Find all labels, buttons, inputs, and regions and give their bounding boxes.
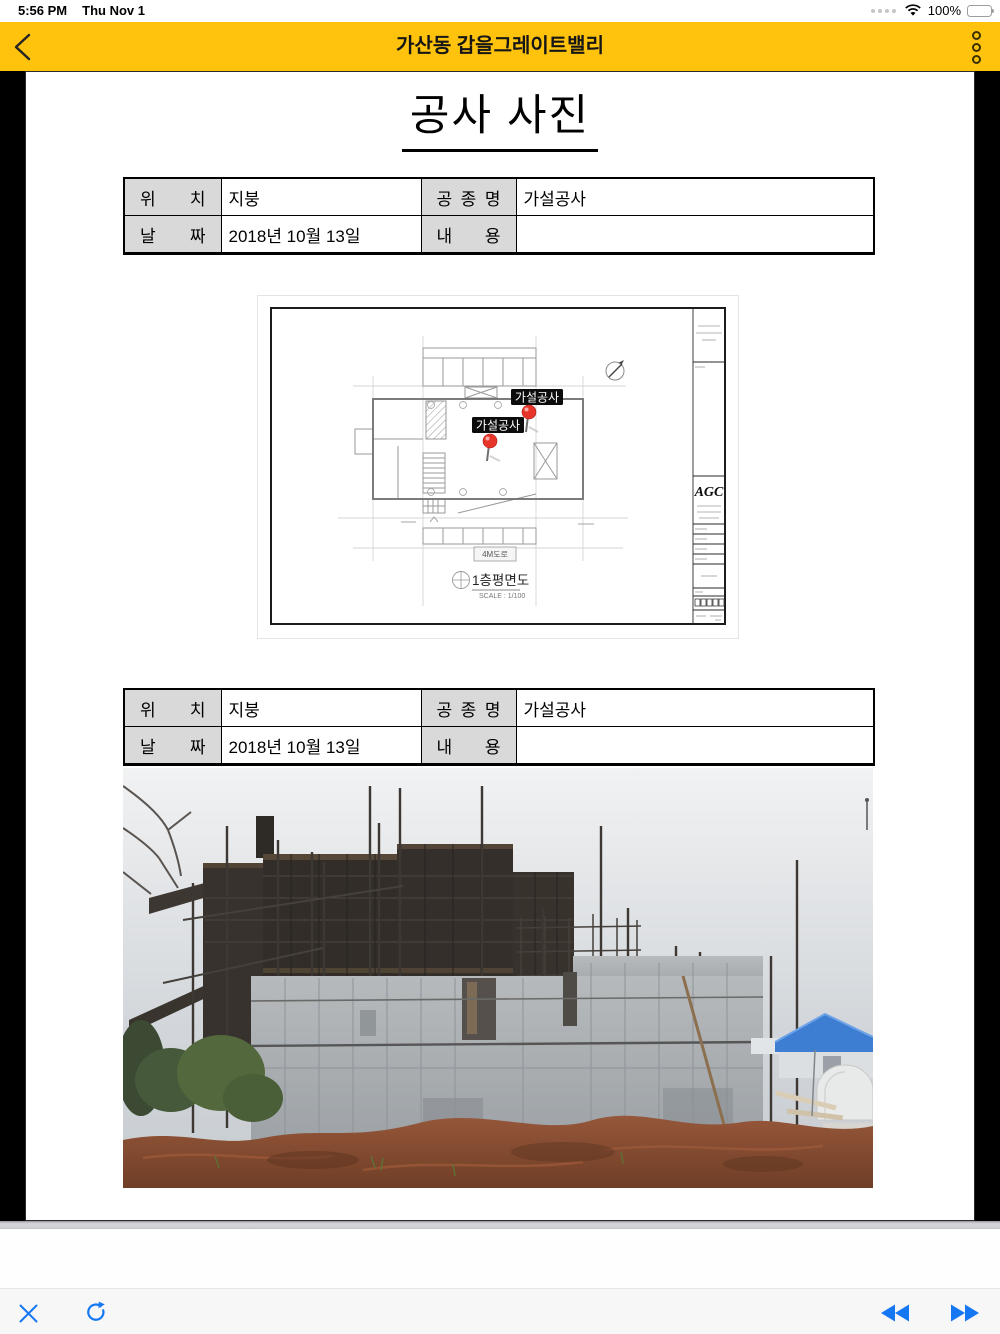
pin-label: 가설공사 xyxy=(515,391,559,405)
value-worktype: 가설공사 xyxy=(516,178,874,216)
more-menu-button[interactable] xyxy=(965,28,987,66)
value-date: 2018년 10월 13일 xyxy=(221,727,421,765)
fast-forward-icon xyxy=(950,1303,980,1323)
back-button[interactable] xyxy=(6,28,44,66)
label-location: 위 치 xyxy=(124,689,221,727)
chevron-left-icon xyxy=(6,28,44,66)
previous-page-button[interactable] xyxy=(878,1298,912,1328)
construction-photo xyxy=(123,768,873,1188)
floor-plan-figure: AGC xyxy=(258,296,738,638)
label-content: 내 용 xyxy=(421,727,516,765)
road-label: 4M도로 xyxy=(474,547,516,561)
battery-percent: 100% xyxy=(928,3,961,18)
next-page-button[interactable] xyxy=(948,1298,982,1328)
value-location: 지붕 xyxy=(221,178,421,216)
cellular-signal-icon xyxy=(871,9,896,13)
label-content: 내 용 xyxy=(421,216,516,254)
label-location: 위 치 xyxy=(124,178,221,216)
bottom-toolbar xyxy=(0,1288,1000,1334)
page-title: 가산동 갑을그레이트밸리 xyxy=(60,22,940,71)
label-date: 날 짜 xyxy=(124,216,221,254)
status-time: 5:56 PM xyxy=(18,3,67,18)
table-row: 위 치 지붕 공 종 명 가설공사 xyxy=(124,689,874,727)
close-button[interactable] xyxy=(11,1298,45,1328)
wifi-icon xyxy=(904,4,922,17)
dot-icon xyxy=(972,43,981,52)
app-screen: 5:56 PM Thu Nov 1 100% 가산동 갑을그레이트밸리 xyxy=(0,0,1000,1334)
label-worktype: 공 종 명 xyxy=(421,178,516,216)
status-bar: 5:56 PM Thu Nov 1 100% xyxy=(0,0,1000,22)
nav-bar: 가산동 갑을그레이트밸리 xyxy=(0,22,1000,71)
map-pin-icon xyxy=(522,405,536,419)
scroll-edge-divider xyxy=(0,1221,1000,1229)
document-viewer[interactable]: 공사 사진 위 치 지붕 공 종 명 가설공사 날 짜 2018년 10월 13… xyxy=(0,71,1000,1221)
info-table-2: 위 치 지붕 공 종 명 가설공사 날 짜 2018년 10월 13일 내 용 xyxy=(123,688,875,766)
close-icon xyxy=(17,1302,40,1325)
table-row: 날 짜 2018년 10월 13일 내 용 xyxy=(124,727,874,765)
rewind-icon xyxy=(880,1303,910,1323)
status-date: Thu Nov 1 xyxy=(82,3,145,18)
document-page: 공사 사진 위 치 지붕 공 종 명 가설공사 날 짜 2018년 10월 13… xyxy=(25,71,975,1221)
reload-button[interactable] xyxy=(79,1298,113,1328)
plan-scale-text: SCALE : 1/100 xyxy=(479,593,525,600)
label-date: 날 짜 xyxy=(124,727,221,765)
table-row: 위 치 지붕 공 종 명 가설공사 xyxy=(124,178,874,216)
document-title: 공사 사진 xyxy=(402,81,598,152)
value-location: 지붕 xyxy=(221,689,421,727)
below-page-gap xyxy=(0,1229,1000,1288)
value-worktype: 가설공사 xyxy=(516,689,874,727)
value-content xyxy=(516,216,874,254)
construction-photo-image xyxy=(123,768,873,1188)
floor-plan-image: AGC xyxy=(258,296,738,638)
dot-icon xyxy=(972,31,981,40)
svg-text:4M도로: 4M도로 xyxy=(482,550,508,559)
label-worktype: 공 종 명 xyxy=(421,689,516,727)
plan-caption-text: 1층평면도 xyxy=(472,573,529,588)
pin-label: 가설공사 xyxy=(476,419,520,433)
value-date: 2018년 10월 13일 xyxy=(221,216,421,254)
reload-icon xyxy=(83,1300,109,1326)
battery-icon xyxy=(967,5,992,17)
architect-logo: AGC xyxy=(694,485,724,500)
dot-icon xyxy=(972,55,981,64)
map-pin-icon xyxy=(483,434,497,448)
value-content xyxy=(516,727,874,765)
table-row: 날 짜 2018년 10월 13일 내 용 xyxy=(124,216,874,254)
info-table-1: 위 치 지붕 공 종 명 가설공사 날 짜 2018년 10월 13일 내 용 xyxy=(123,177,875,255)
